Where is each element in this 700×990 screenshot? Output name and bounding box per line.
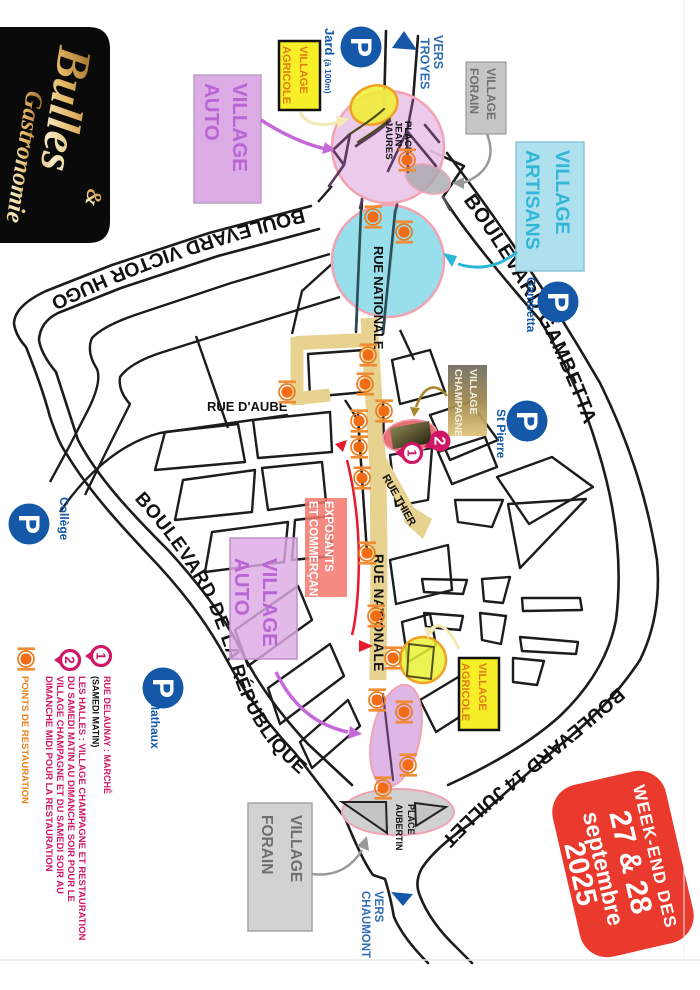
- svg-text:RUE NATIONALE: RUE NATIONALE: [371, 246, 386, 350]
- svg-text:POINTS DE RESTAURATION: POINTS DE RESTAURATION: [19, 676, 30, 804]
- svg-text:Collège: Collège: [57, 497, 71, 541]
- svg-text:Gambetta: Gambetta: [524, 277, 538, 333]
- svg-text:St Pierre: St Pierre: [494, 409, 508, 459]
- svg-text:2: 2: [62, 656, 78, 664]
- svg-text:2: 2: [431, 437, 448, 446]
- svg-text:Mathaux: Mathaux: [148, 700, 162, 749]
- svg-text:RUE D'AUBE: RUE D'AUBE: [207, 399, 288, 414]
- svg-text:1: 1: [94, 652, 109, 659]
- svg-text:1: 1: [405, 449, 420, 456]
